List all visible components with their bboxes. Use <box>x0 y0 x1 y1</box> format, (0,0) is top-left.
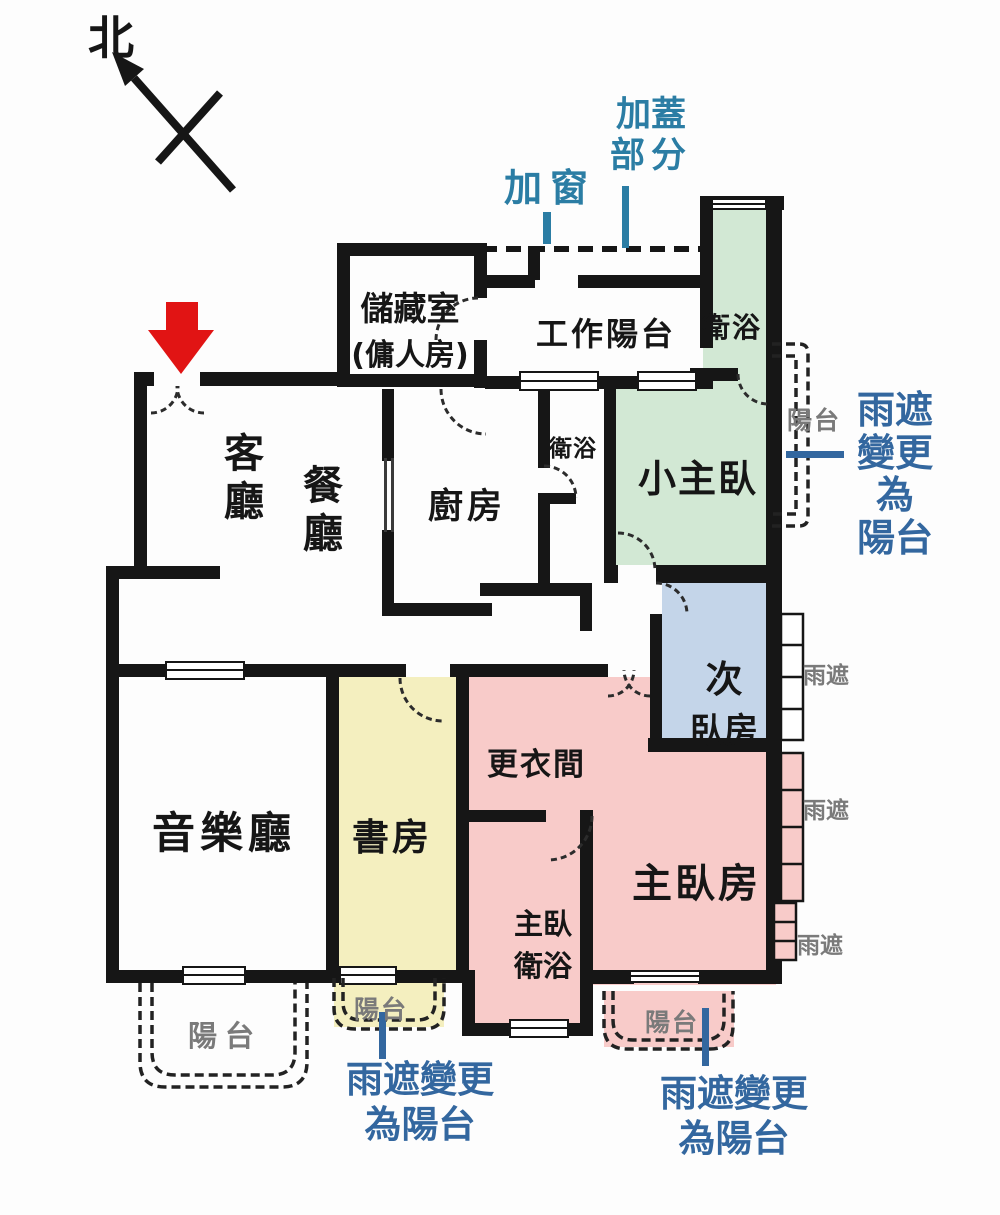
floor-plan-linework <box>0 0 1000 1215</box>
room-label-master-bath: 主臥 衛浴 <box>506 901 580 985</box>
rain-shield-label-2: 雨遮 <box>803 791 849 825</box>
room-label-work-balcony: 工作陽台 <box>536 309 676 355</box>
annotation-added-window: 加窗 <box>504 157 596 212</box>
master-bath-line1: 主臥 <box>506 901 580 943</box>
entry-door-left-arc <box>151 386 178 413</box>
dressing-door-left-arc <box>608 670 634 696</box>
north-arrow <box>112 52 233 190</box>
right-change-pointer <box>786 451 844 458</box>
room-label-bath-middle: 衛浴 <box>549 429 597 463</box>
added-window-pointer <box>543 212 551 244</box>
rain-shield-label-1: 雨遮 <box>803 656 849 690</box>
annotation-bottom-right-change: 雨遮變更 為陽台 <box>642 1071 826 1161</box>
storage-line1: 儲藏室 <box>332 282 488 330</box>
room-label-living: 客廳 <box>224 430 266 526</box>
balcony-label-left: 陽台 <box>188 1013 262 1055</box>
entry-door-right-arc <box>177 386 204 413</box>
entry-arrow-icon <box>148 302 214 374</box>
bottom-right-change-line2: 為陽台 <box>642 1116 826 1161</box>
kitchen-slide-line <box>384 458 387 532</box>
rain-shield-label-3: 雨遮 <box>797 926 843 960</box>
added-cover-pointer <box>622 186 629 248</box>
room-label-small-master: 小主臥 <box>638 448 758 503</box>
right-change-line1: 雨遮 <box>849 389 941 432</box>
right-change-line2: 變更 <box>849 432 941 475</box>
right-change-line3: 為 <box>849 474 941 517</box>
room-label-storage: 儲藏室 (傭人房) <box>332 282 488 374</box>
upper-bath-door-arc <box>738 374 768 404</box>
balcony-label-study: 陽台 <box>354 990 408 1026</box>
floor-plan: 北 客廳 餐廳 廚房 儲藏室 (傭人房) 工作陽台 衛浴 衛浴 小主臥 次 臥房… <box>0 0 1000 1215</box>
storage-line2: (傭人房) <box>332 330 488 374</box>
bottom-right-change-line1: 雨遮變更 <box>642 1071 826 1116</box>
balcony-label-right-strip: 陽台 <box>787 401 841 437</box>
room-label-bath-upper: 衛浴 <box>702 306 762 346</box>
room-label-study: 書房 <box>352 807 432 861</box>
second-bedroom-line1: 次 <box>682 649 766 703</box>
room-label-dressing: 更衣間 <box>487 739 586 784</box>
balcony-label-master: 陽台 <box>645 1003 699 1039</box>
annotation-added-cover: 加蓋 部分 <box>603 95 699 178</box>
second-bedroom-line2: 臥房 <box>682 703 766 752</box>
room-label-dining: 餐廳 <box>303 462 345 558</box>
room-label-kitchen: 廚房 <box>428 478 506 529</box>
annotation-right-change: 雨遮 變更 為 陽台 <box>849 389 941 559</box>
second-bedroom-door-arc <box>656 583 687 614</box>
small-master-door-arc <box>618 533 655 570</box>
hall-door-arc <box>441 389 486 434</box>
room-label-music-hall: 音樂廳 <box>152 799 296 861</box>
kitchen-slide-line <box>391 458 394 532</box>
master-bath-line2: 衛浴 <box>506 943 580 985</box>
added-cover-line1: 加蓋 <box>603 95 699 136</box>
room-label-master-bedroom: 主臥房 <box>632 851 761 909</box>
room-label-second-bedroom: 次 臥房 <box>682 649 766 752</box>
north-label: 北 <box>88 2 134 68</box>
dressing-door-right-arc <box>624 670 650 696</box>
north-cross-stroke <box>158 93 220 162</box>
bottom-right-change-pointer <box>702 1008 709 1066</box>
right-change-line4: 陽台 <box>849 517 941 560</box>
added-cover-line2: 部分 <box>603 136 699 177</box>
bottom-left-change-line1: 雨遮變更 <box>328 1057 512 1102</box>
bottom-left-change-line2: 為陽台 <box>328 1102 512 1147</box>
annotation-bottom-left-change: 雨遮變更 為陽台 <box>328 1057 512 1147</box>
study-door-arc <box>400 678 443 721</box>
